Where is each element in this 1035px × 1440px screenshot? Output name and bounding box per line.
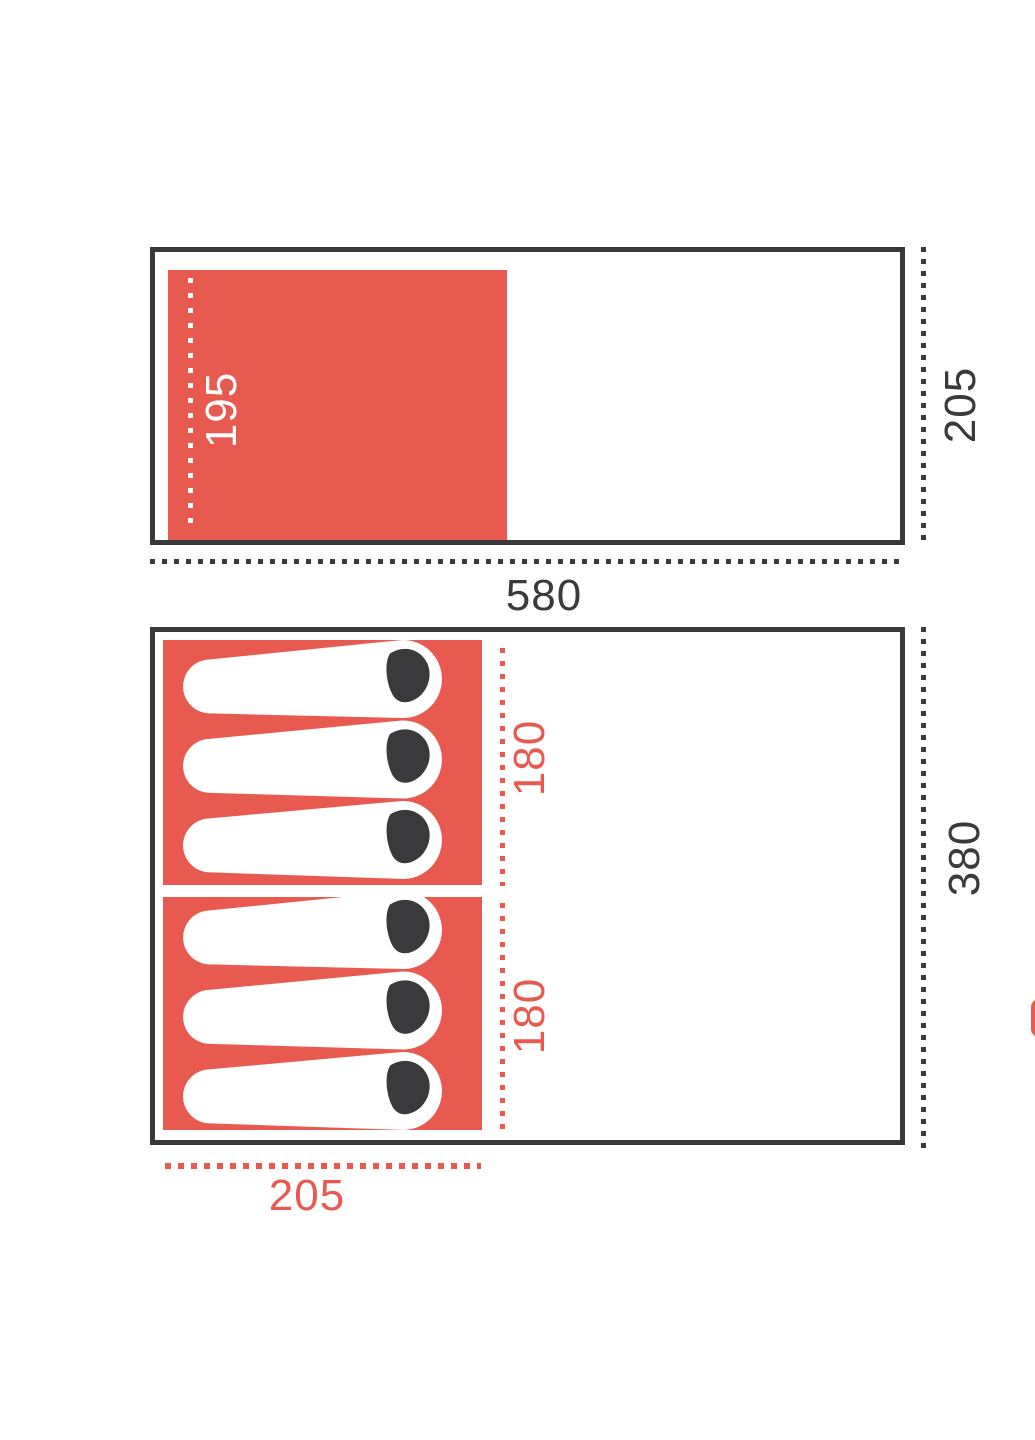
cropped-red-shape: [1031, 999, 1035, 1037]
bottom-plan-length-label: 380: [939, 778, 991, 938]
bottom-plan-length-dimension-line: [921, 627, 926, 1151]
top-plan-bedroom-depth-line: [188, 278, 193, 532]
top-plan-depth-label: 205: [935, 325, 987, 485]
sleeping-bags-icon: [163, 897, 482, 1130]
top-plan-width-dimension-line: [150, 559, 905, 564]
bedroom-1-length-label: 180: [504, 678, 556, 838]
bedroom-2-length-label: 180: [504, 936, 556, 1096]
bedroom-width-dimension-line: [165, 1163, 481, 1169]
top-plan-depth-dimension-line: [921, 247, 926, 545]
bedroom-2-area: [163, 897, 482, 1130]
bedroom-1-area: [163, 640, 482, 885]
sleeping-bags-icon: [163, 640, 482, 885]
top-plan-width-label: 580: [464, 570, 624, 622]
top-plan-bedroom-depth-label: 195: [196, 330, 248, 490]
bedroom-width-label: 205: [227, 1170, 387, 1222]
